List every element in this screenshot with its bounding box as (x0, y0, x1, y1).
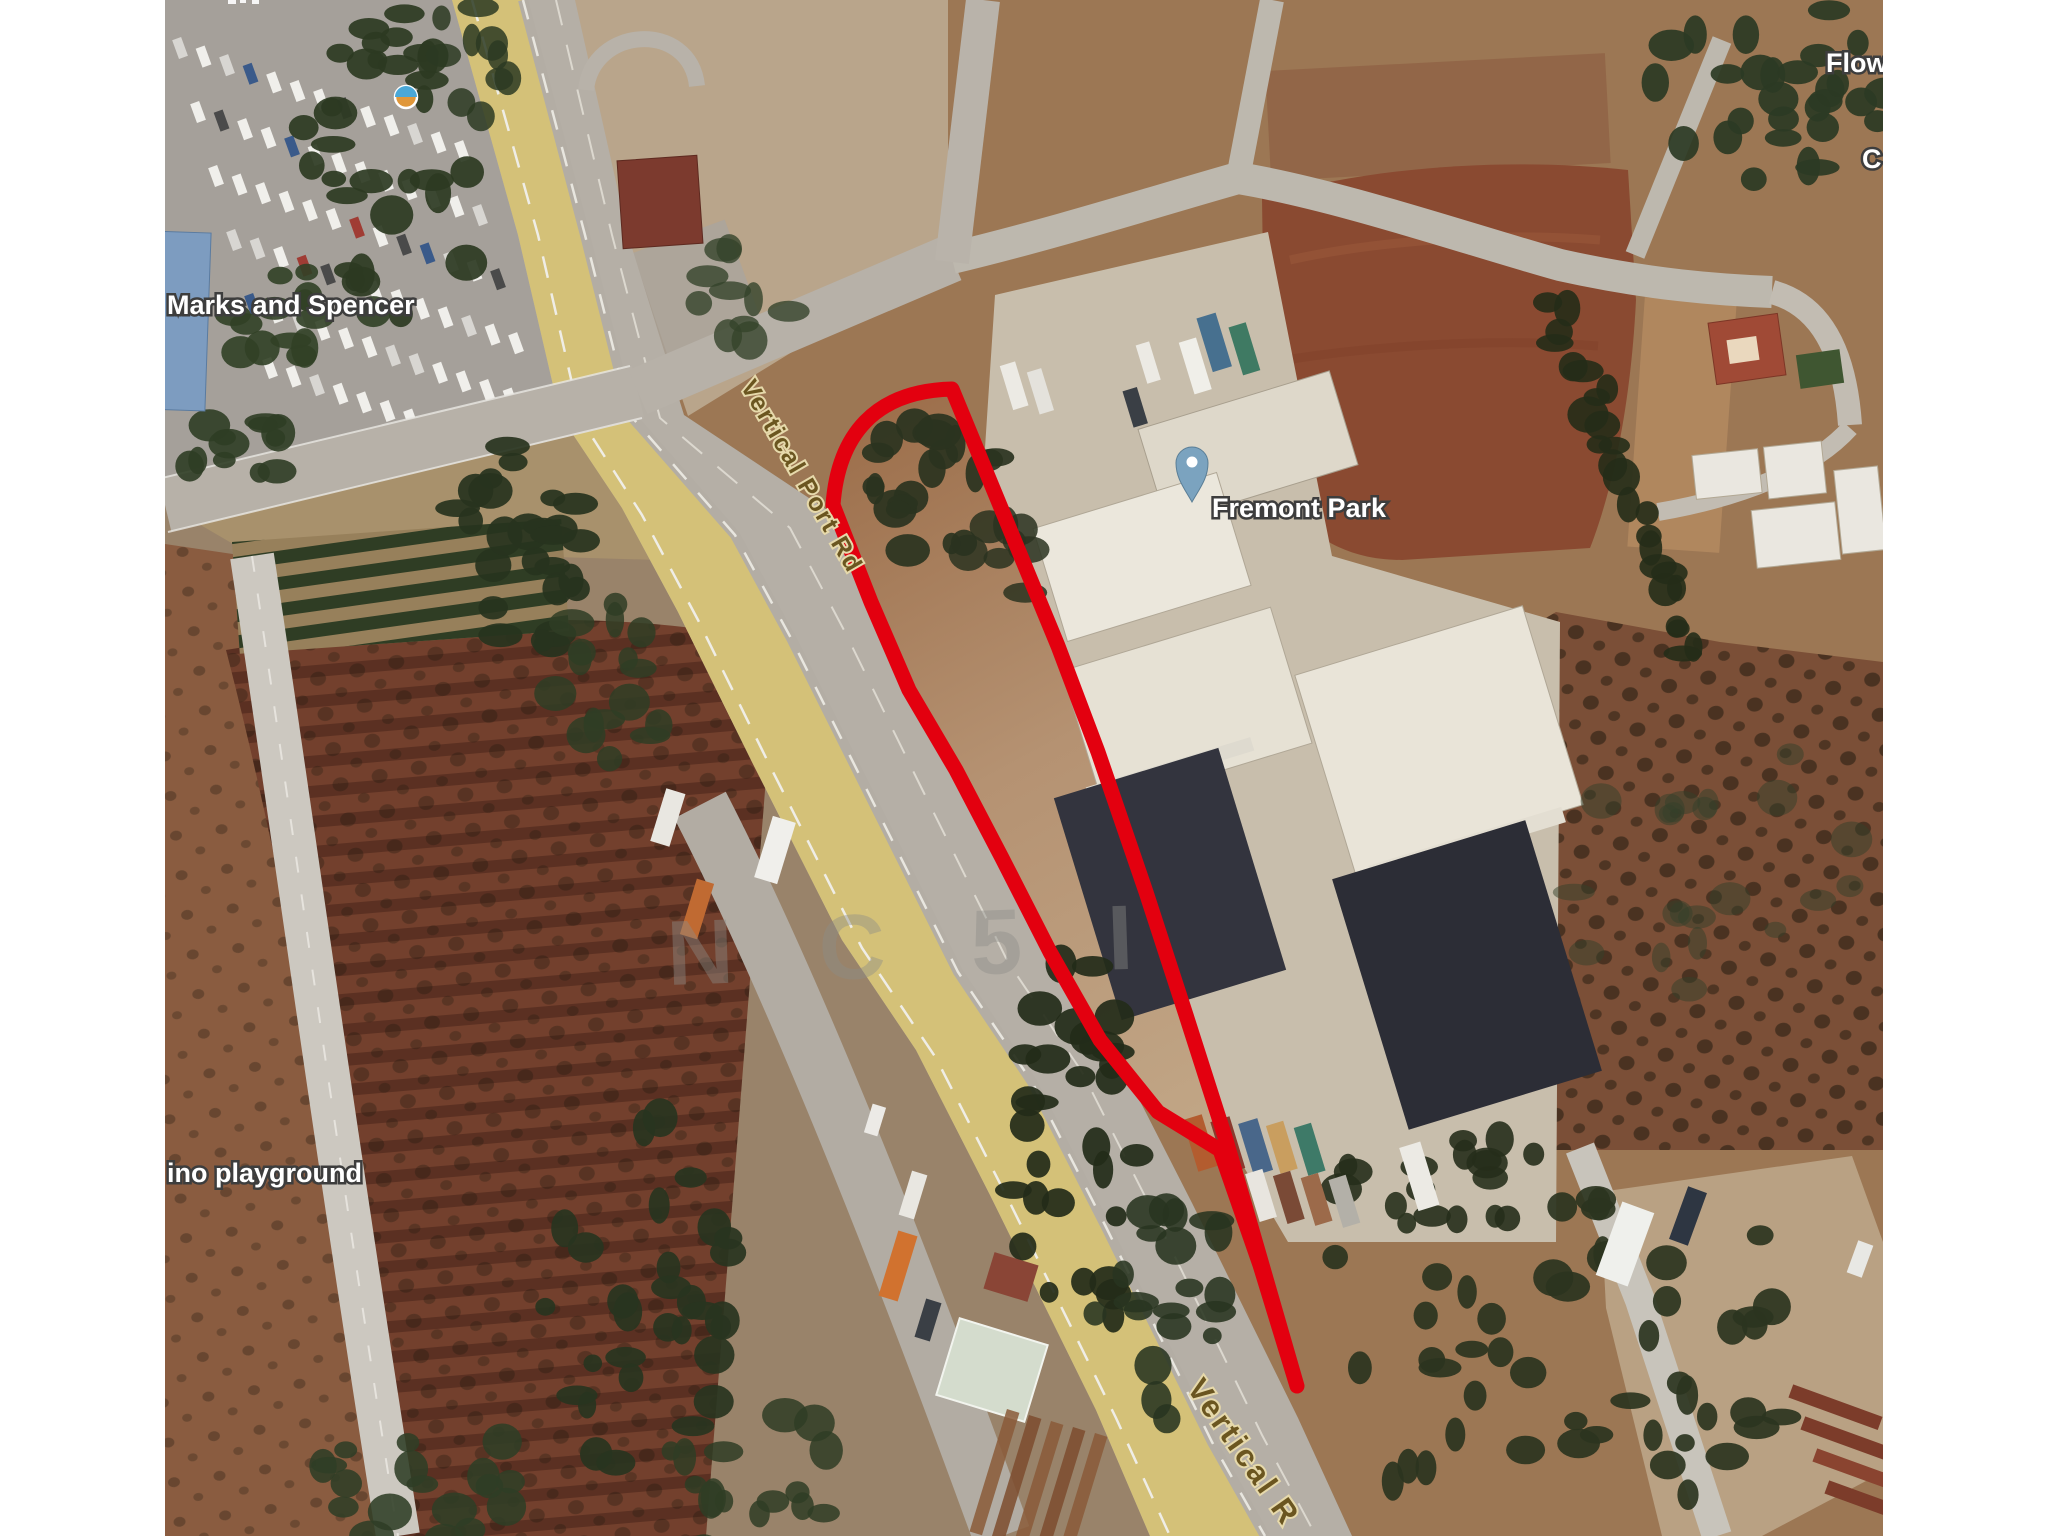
white-building (1692, 449, 1762, 500)
satellite-map-screenshot: N C 5 I Marks and Spencer Fremont Park i… (0, 0, 2048, 1536)
poi-icon[interactable] (395, 86, 417, 108)
red-roof-building (617, 155, 703, 248)
place-label-marks-and-spencer[interactable]: Marks and Spencer (167, 290, 415, 320)
place-label-c-clipped[interactable]: C (1862, 144, 1882, 174)
white-building (1834, 466, 1887, 554)
map-canvas[interactable]: N C 5 I Marks and Spencer Fremont Park i… (0, 0, 2048, 1536)
white-building (1763, 441, 1826, 499)
place-label-fremont-park[interactable]: Fremont Park (1212, 493, 1387, 523)
white-building (1751, 502, 1841, 568)
courtyard (1726, 336, 1759, 364)
garden-patch (1796, 349, 1844, 389)
pin-dot (1187, 457, 1198, 468)
place-label-playground[interactable]: ino playground (167, 1158, 362, 1188)
scrub-patch-top (1265, 53, 1610, 181)
watermark: N C 5 I (665, 886, 1165, 1005)
place-label-flower-clipped[interactable]: Flow (1826, 48, 1888, 78)
store-building-blue-roof (147, 231, 211, 411)
